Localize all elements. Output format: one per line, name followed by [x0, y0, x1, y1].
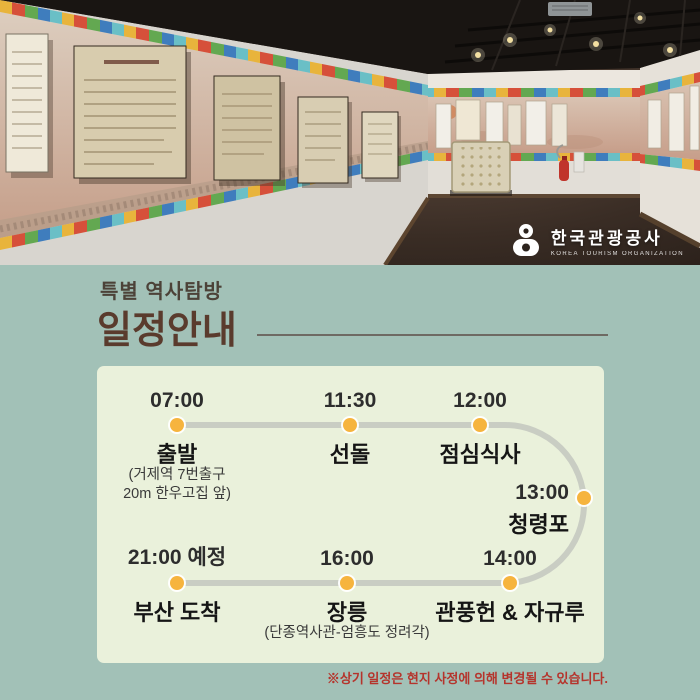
heater-box — [450, 142, 512, 196]
kto-logo-name: 한국관광공사 — [551, 224, 684, 249]
stop-name: 부산 도착 — [133, 595, 220, 627]
timeline-dot — [340, 576, 354, 590]
kto-logo-subtitle: KOREA TOURISM ORGANIZATION — [551, 251, 684, 257]
stop-time: 14:00 — [483, 547, 537, 571]
stop-time: 12:00 — [453, 389, 507, 413]
stop-name: 출발 — [157, 437, 197, 469]
timeline-dot — [343, 418, 357, 432]
timeline-dot — [503, 576, 517, 590]
stop-time: 13:00 — [515, 481, 569, 505]
timeline-dot — [473, 418, 487, 432]
stop-time: 11:30 — [324, 389, 377, 413]
stop-name: 관풍헌 & 자규루 — [435, 595, 585, 627]
kto-logo-icon — [509, 222, 543, 258]
timeline-dot — [170, 576, 184, 590]
itinerary-poster: 한국관광공사 KOREA TOURISM ORGANIZATION 특별 역사탐… — [0, 0, 700, 700]
stop-note: (거제역 7번출구 20m 한우고집 앞) — [123, 466, 231, 504]
title-divider-line — [257, 334, 608, 336]
itinerary-card: 07:00 출발 (거제역 7번출구 20m 한우고집 앞) 11:30 선돌 … — [97, 366, 604, 663]
stop-name: 선돌 — [330, 437, 370, 469]
stop-time: 16:00 — [320, 547, 374, 571]
exhibition-photo: 한국관광공사 KOREA TOURISM ORGANIZATION — [0, 0, 700, 265]
stop-note: (단종역사관-엄흥도 정려각) — [264, 624, 429, 643]
timeline-dot — [577, 491, 591, 505]
stop-name: 장릉 — [327, 595, 367, 627]
stop-name: 청령포 — [508, 507, 569, 539]
right-wall — [640, 48, 700, 248]
timeline-dot — [170, 418, 184, 432]
poster-title: 일정안내 — [97, 299, 237, 354]
stop-name: 점심식사 — [440, 437, 521, 469]
stop-time: 21:00 예정 — [128, 541, 226, 571]
stop-time: 07:00 — [150, 389, 204, 413]
kto-logo: 한국관광공사 KOREA TOURISM ORGANIZATION — [509, 222, 684, 258]
disclaimer-note: ※상기 일정은 현지 사정에 의해 변경될 수 있습니다. — [327, 668, 608, 687]
